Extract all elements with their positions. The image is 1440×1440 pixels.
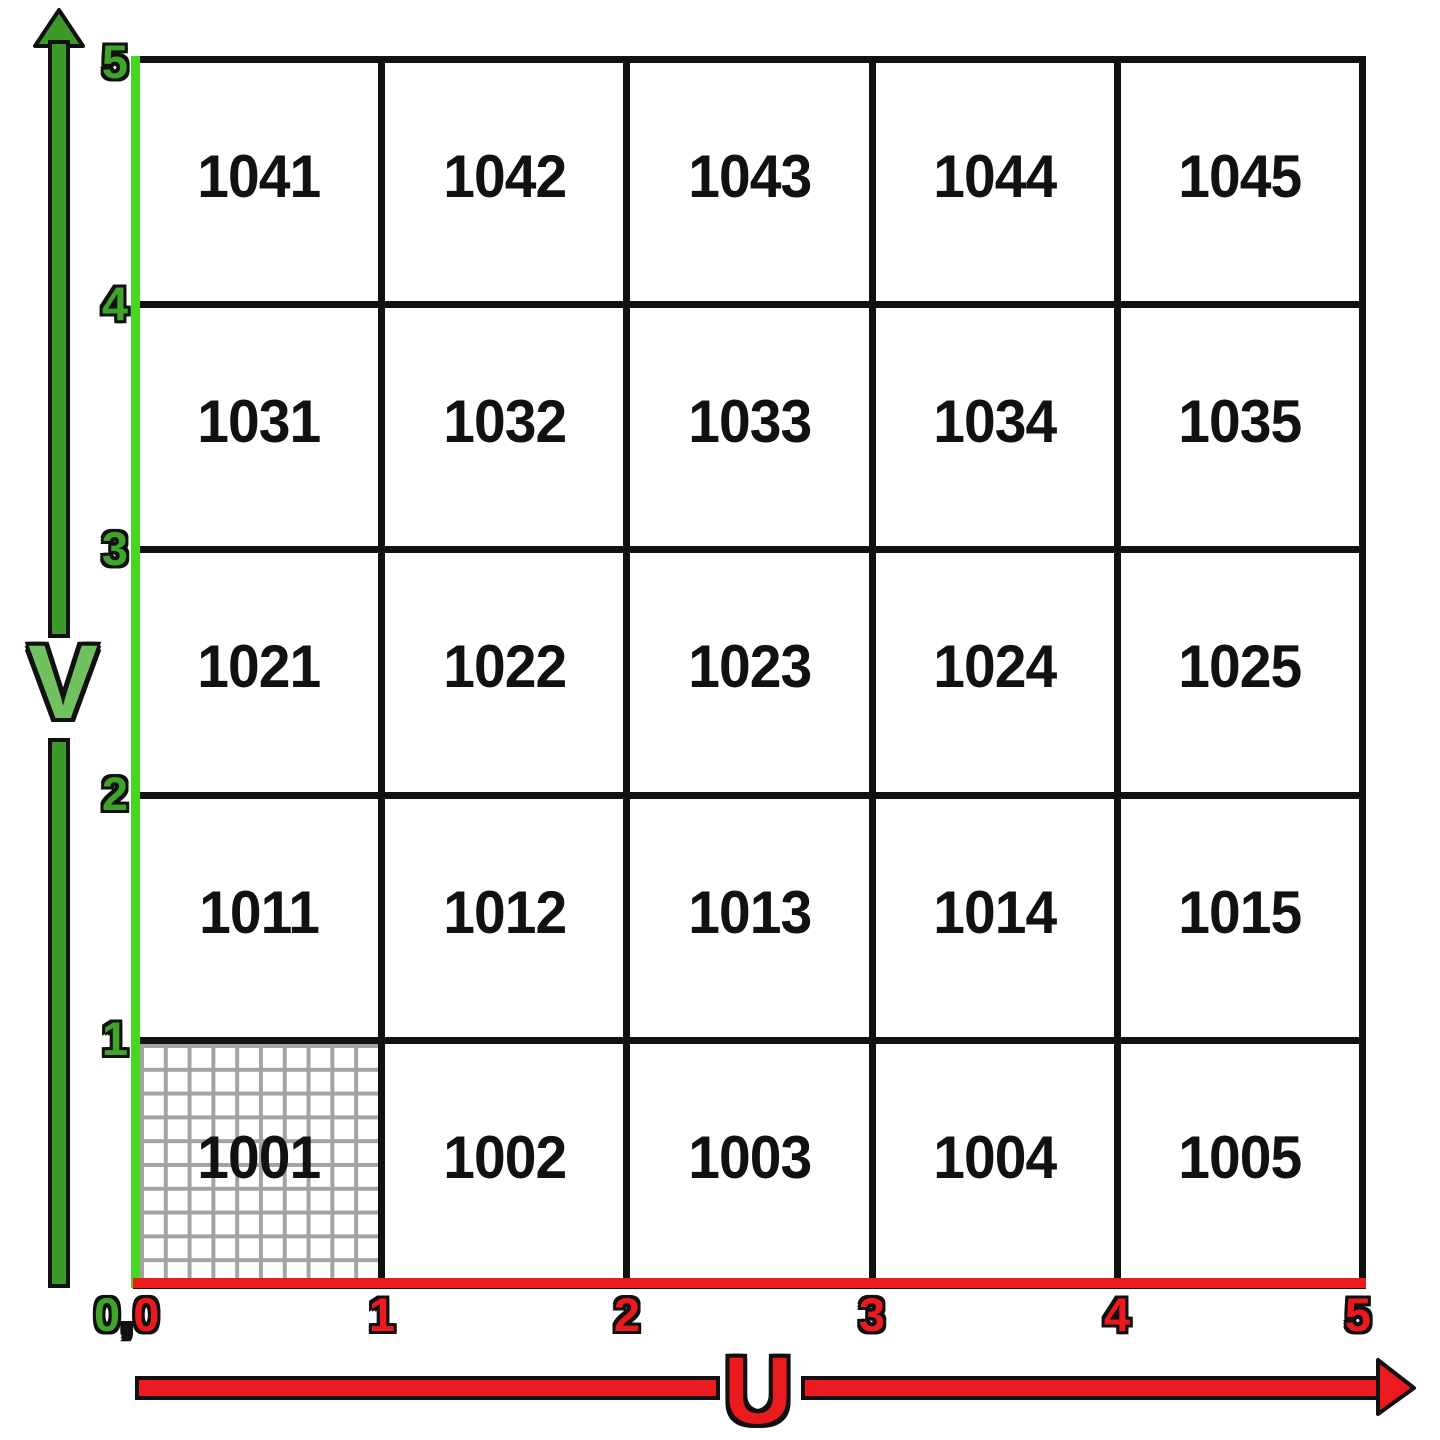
v-tick-4: 4 xyxy=(58,280,128,327)
tile-number: 1024 xyxy=(933,637,1056,697)
u-arrowhead-icon xyxy=(1378,1360,1414,1414)
tile-number: 1032 xyxy=(443,392,566,452)
uv-tile-grid: 1041 1042 1043 1044 1045 1031 1032 1033 … xyxy=(133,56,1366,1289)
origin-u-zero: 0 xyxy=(133,1291,159,1338)
tile-1034: 1034 xyxy=(876,308,1114,546)
v-tick-5: 5 xyxy=(58,38,128,85)
tile-number: 1042 xyxy=(443,147,566,207)
tile-number: 1002 xyxy=(443,1128,566,1188)
u-arrow-bar-left xyxy=(137,1378,718,1398)
tile-1015: 1015 xyxy=(1121,799,1359,1037)
tile-1042: 1042 xyxy=(385,63,623,301)
tile-1035: 1035 xyxy=(1121,308,1359,546)
tile-1041: 1041 xyxy=(140,63,378,301)
tile-number: 1015 xyxy=(1178,883,1301,943)
tile-1045: 1045 xyxy=(1121,63,1359,301)
tile-1025: 1025 xyxy=(1121,553,1359,791)
tile-number: 1033 xyxy=(688,392,811,452)
tile-1003: 1003 xyxy=(630,1044,868,1282)
tile-number: 1035 xyxy=(1178,392,1301,452)
v-arrow-bar-bottom xyxy=(50,740,68,1286)
tile-1022: 1022 xyxy=(385,553,623,791)
tile-1044: 1044 xyxy=(876,63,1114,301)
tile-1002: 1002 xyxy=(385,1044,623,1282)
u-tick-1: 1 xyxy=(342,1291,422,1338)
uv-udim-diagram: V 1041 1042 1043 1044 1045 1031 1032 103… xyxy=(0,0,1440,1440)
tile-number: 1031 xyxy=(198,392,321,452)
tile-number: 1044 xyxy=(933,147,1056,207)
tile-number: 1003 xyxy=(688,1128,811,1188)
tile-1005: 1005 xyxy=(1121,1044,1359,1282)
tile-number: 1034 xyxy=(933,392,1056,452)
u-arrow-bar-right xyxy=(803,1378,1378,1398)
u-tick-3: 3 xyxy=(832,1291,912,1338)
tile-number: 1013 xyxy=(688,883,811,943)
tile-number: 1004 xyxy=(933,1128,1056,1188)
tile-number: 1043 xyxy=(688,147,811,207)
tile-number: 1045 xyxy=(1178,147,1301,207)
tile-number: 1023 xyxy=(688,637,811,697)
tile-1033: 1033 xyxy=(630,308,868,546)
u-axis-line xyxy=(133,1278,1366,1288)
tile-1013: 1013 xyxy=(630,799,868,1037)
origin-v-zero: 0 xyxy=(94,1291,120,1338)
v-tick-3: 3 xyxy=(58,525,128,572)
origin-label: 0,0 xyxy=(94,1291,159,1338)
tile-number: 1001 xyxy=(198,1128,321,1188)
origin-separator: , xyxy=(120,1291,133,1338)
tile-number: 1012 xyxy=(443,883,566,943)
tile-1024: 1024 xyxy=(876,553,1114,791)
v-axis-label: V xyxy=(13,630,113,735)
u-tick-4: 4 xyxy=(1077,1291,1157,1338)
tile-number: 1011 xyxy=(199,883,319,943)
tile-1021: 1021 xyxy=(140,553,378,791)
tile-1004: 1004 xyxy=(876,1044,1114,1282)
tile-1014: 1014 xyxy=(876,799,1114,1037)
tile-number: 1022 xyxy=(443,637,566,697)
u-tick-2: 2 xyxy=(587,1291,667,1338)
tile-1031: 1031 xyxy=(140,308,378,546)
tile-number: 1025 xyxy=(1178,637,1301,697)
u-tick-5: 5 xyxy=(1318,1291,1398,1338)
tile-1001-textured: 1001 xyxy=(140,1044,378,1282)
v-axis-line xyxy=(131,56,140,1288)
tile-1043: 1043 xyxy=(630,63,868,301)
tile-number: 1014 xyxy=(933,883,1056,943)
v-tick-2: 2 xyxy=(58,770,128,817)
tile-1032: 1032 xyxy=(385,308,623,546)
tile-number: 1041 xyxy=(198,147,321,207)
v-tick-1: 1 xyxy=(58,1015,128,1062)
tile-1012: 1012 xyxy=(385,799,623,1037)
u-axis-label: U xyxy=(708,1344,808,1439)
tile-number: 1005 xyxy=(1178,1128,1301,1188)
tile-1023: 1023 xyxy=(630,553,868,791)
tile-1011: 1011 xyxy=(140,799,378,1037)
tile-number: 1021 xyxy=(198,637,321,697)
